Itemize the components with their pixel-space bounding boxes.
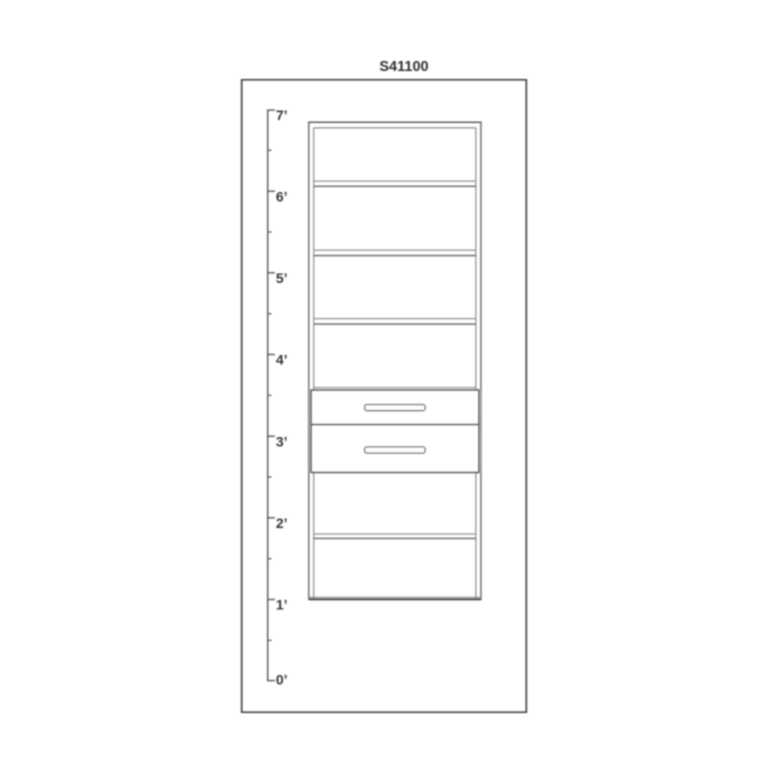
svg-text:0’: 0’ xyxy=(276,671,288,687)
svg-text:4’: 4’ xyxy=(276,352,288,368)
svg-text:7’: 7’ xyxy=(276,107,288,123)
svg-text:S41100: S41100 xyxy=(379,59,428,75)
svg-text:2’: 2’ xyxy=(276,515,288,531)
svg-text:6’: 6’ xyxy=(276,188,288,204)
svg-text:5’: 5’ xyxy=(276,270,288,286)
svg-text:1’: 1’ xyxy=(276,597,288,613)
svg-text:3’: 3’ xyxy=(276,433,288,449)
